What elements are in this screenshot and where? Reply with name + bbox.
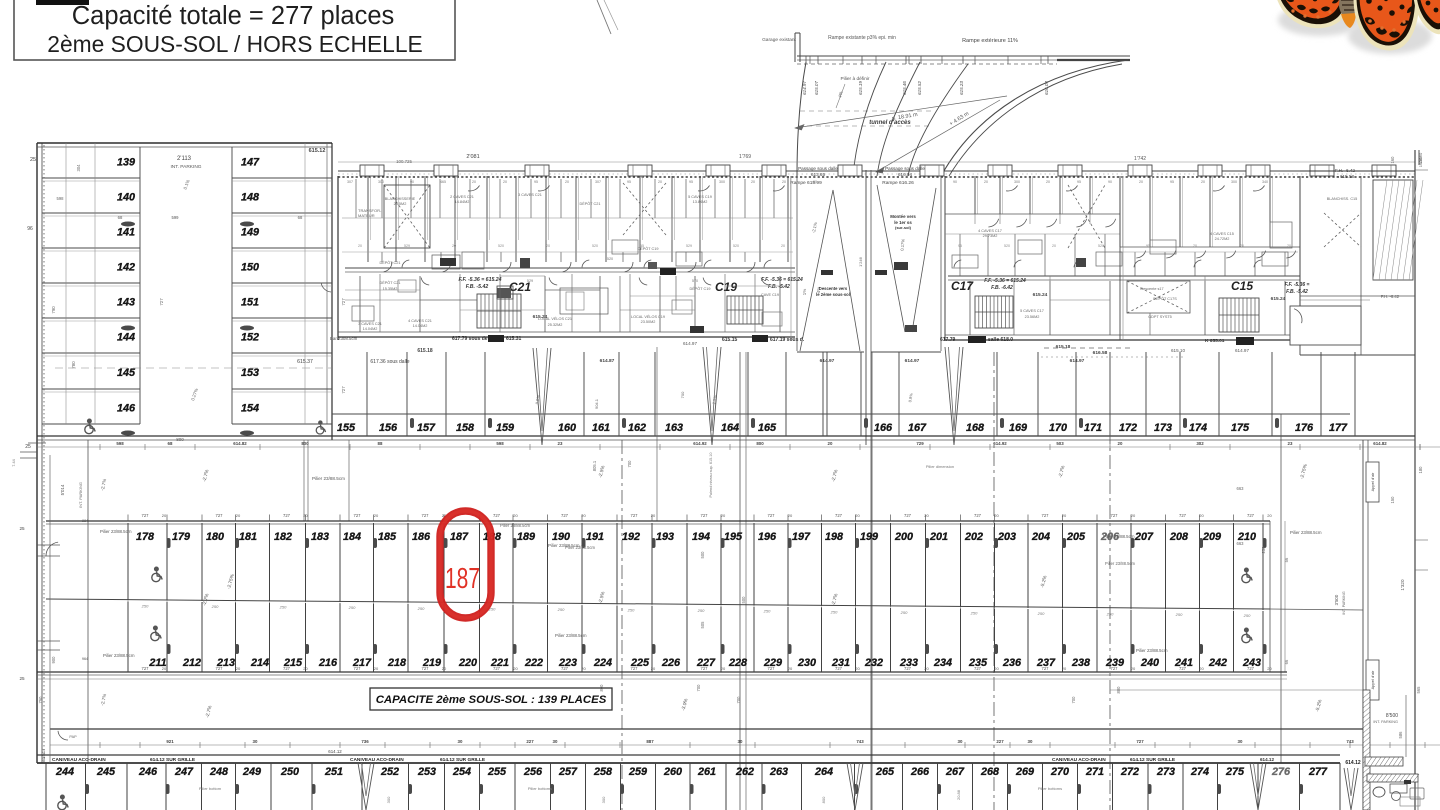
svg-text:CANIVEAU ACO-DRAIN: CANIVEAU ACO-DRAIN (1052, 757, 1106, 763)
svg-text:614.92: 614.92 (993, 441, 1007, 446)
svg-text:244: 244 (55, 766, 74, 778)
svg-text:615.07: 615.07 (814, 81, 819, 95)
svg-text:24.72M2: 24.72M2 (1215, 237, 1230, 241)
svg-text:251: 251 (324, 766, 343, 778)
svg-text:20: 20 (1131, 666, 1136, 671)
svg-text:727: 727 (701, 513, 709, 518)
svg-text:250: 250 (1037, 611, 1045, 616)
svg-text:227: 227 (996, 739, 1004, 744)
svg-text:95: 95 (689, 180, 693, 184)
svg-text:1'769: 1'769 (739, 154, 751, 160)
svg-text:DÉPÔT C19: DÉPÔT C19 (689, 286, 710, 291)
svg-text:153: 153 (241, 367, 259, 379)
svg-text:20: 20 (236, 666, 241, 671)
svg-text:780: 780 (71, 361, 76, 369)
svg-text:1'742: 1'742 (1134, 156, 1146, 162)
svg-text:598: 598 (57, 196, 65, 201)
svg-text:529: 529 (404, 244, 410, 248)
svg-text:727: 727 (1136, 739, 1144, 744)
svg-text:727: 727 (904, 513, 912, 518)
svg-text:614.82: 614.82 (233, 441, 247, 446)
svg-text:95: 95 (1077, 180, 1081, 184)
svg-text:LOCAL VÉLOS C19: LOCAL VÉLOS C19 (631, 314, 665, 319)
svg-text:23.56M2: 23.56M2 (1025, 315, 1040, 319)
svg-text:201: 201 (929, 531, 948, 543)
svg-text:196: 196 (758, 531, 777, 543)
svg-text:800: 800 (821, 796, 826, 803)
svg-text:663: 663 (1237, 486, 1245, 491)
svg-text:139: 139 (117, 157, 135, 169)
svg-text:176: 176 (1295, 422, 1314, 434)
svg-text:F.B. -6.42: F.B. -6.42 (991, 285, 1013, 291)
svg-text:230: 230 (797, 657, 816, 669)
svg-text:529: 529 (527, 279, 533, 283)
svg-text:20: 20 (751, 180, 755, 184)
svg-text:140: 140 (117, 192, 135, 204)
svg-text:20: 20 (1287, 244, 1291, 248)
svg-text:250: 250 (900, 610, 908, 615)
svg-text:273: 273 (1156, 766, 1175, 778)
svg-text:727: 727 (768, 513, 776, 518)
svg-text:265: 265 (875, 766, 895, 778)
svg-text:800: 800 (176, 437, 184, 442)
svg-text:520: 520 (733, 244, 739, 248)
svg-text:250: 250 (141, 603, 149, 608)
svg-text:255: 255 (487, 766, 507, 778)
svg-text:20: 20 (1052, 244, 1056, 248)
svg-text:Pilier bottoms: Pilier bottoms (1038, 786, 1062, 791)
svg-text:253: 253 (417, 766, 436, 778)
svg-text:277: 277 (1308, 766, 1328, 778)
svg-text:269: 269 (1015, 766, 1034, 778)
svg-text:520: 520 (1004, 244, 1010, 248)
svg-text:Appel d'air: Appel d'air (1370, 670, 1375, 689)
svg-text:20: 20 (162, 666, 167, 671)
svg-text:520: 520 (1098, 244, 1104, 248)
svg-text:Montée vers: Montée vers (890, 214, 916, 219)
svg-text:615.24: 615.24 (1271, 296, 1286, 302)
svg-text:4 CAVES C17: 4 CAVES C17 (978, 229, 1002, 233)
svg-text:155: 155 (337, 422, 356, 434)
svg-text:183: 183 (311, 531, 329, 543)
svg-text:615.24: 615.24 (1033, 292, 1048, 298)
svg-text:CAVE C19: CAVE C19 (761, 293, 779, 297)
svg-text:156: 156 (379, 422, 398, 434)
svg-text:Pilier 23/88.5cm: Pilier 23/88.5cm (312, 476, 345, 481)
svg-text:727: 727 (216, 513, 224, 518)
svg-text:20: 20 (984, 180, 988, 184)
svg-text:904.1: 904.1 (594, 398, 599, 409)
svg-text:238: 238 (1071, 657, 1090, 669)
svg-text:887: 887 (646, 739, 654, 744)
svg-text:20: 20 (651, 513, 656, 518)
svg-text:216: 216 (318, 657, 338, 669)
svg-text:salle 618.0: salle 618.0 (988, 337, 1013, 343)
svg-text:175: 175 (1231, 422, 1250, 434)
svg-text:190: 190 (552, 531, 570, 543)
svg-text:266: 266 (910, 766, 930, 778)
svg-text:20: 20 (782, 180, 786, 184)
svg-text:20: 20 (658, 180, 662, 184)
svg-text:614.82: 614.82 (1373, 441, 1387, 446)
svg-text:182: 182 (274, 531, 292, 543)
svg-text:800: 800 (599, 684, 604, 692)
svg-text:465: 465 (440, 180, 446, 184)
svg-text:Pilier 23/88.5cm: Pilier 23/88.5cm (100, 529, 132, 534)
svg-text:220: 220 (458, 657, 477, 669)
svg-text:3 CAVES C21: 3 CAVES C21 (518, 193, 542, 197)
svg-text:900: 900 (51, 656, 56, 664)
svg-text:614.12: 614.12 (328, 749, 342, 754)
svg-text:20: 20 (162, 513, 167, 518)
svg-text:MATEUR: MATEUR (358, 213, 375, 218)
svg-text:727: 727 (835, 666, 843, 671)
svg-text:727: 727 (283, 513, 291, 518)
svg-text:250: 250 (1175, 612, 1183, 617)
svg-text:727: 727 (422, 513, 430, 518)
svg-text:250: 250 (970, 610, 978, 615)
svg-text:180: 180 (1418, 466, 1423, 474)
svg-text:614.97: 614.97 (820, 358, 835, 364)
svg-text:96: 96 (27, 226, 33, 232)
svg-text:615.37: 615.37 (297, 359, 313, 365)
svg-text:617.36 sous dalle: 617.36 sous dalle (370, 359, 409, 365)
svg-text:20: 20 (565, 180, 569, 184)
svg-text:20: 20 (1062, 513, 1067, 518)
svg-text:240: 240 (1140, 657, 1159, 669)
svg-text:700: 700 (736, 696, 741, 704)
svg-text:172: 172 (1119, 422, 1137, 434)
svg-text:615.15: 615.15 (722, 337, 738, 343)
svg-text:250: 250 (557, 607, 565, 612)
svg-text:250: 250 (211, 604, 219, 609)
svg-text:727: 727 (561, 513, 569, 518)
svg-text:727: 727 (341, 298, 346, 306)
svg-text:151: 151 (241, 297, 259, 309)
svg-text:20: 20 (855, 666, 860, 671)
svg-text:505: 505 (700, 621, 705, 629)
svg-text:2ème SOUS-SOL / HORS ECHELLE: 2ème SOUS-SOL / HORS ECHELLE (47, 31, 422, 57)
svg-text:F.F. -5.36 =: F.F. -5.36 = (1285, 282, 1310, 288)
svg-text:(sur-sol): (sur-sol) (895, 225, 912, 230)
svg-text:30: 30 (1028, 739, 1033, 744)
svg-text:267: 267 (945, 766, 965, 778)
svg-text:727: 727 (1042, 666, 1050, 671)
svg-text:20: 20 (788, 513, 793, 518)
svg-text:245: 245 (96, 766, 116, 778)
svg-text:300: 300 (1014, 180, 1020, 184)
svg-text:DÉPÔT C17S: DÉPÔT C17S (1153, 296, 1177, 301)
svg-text:C19: C19 (715, 280, 737, 294)
svg-text:158: 158 (456, 422, 474, 434)
svg-text:202: 202 (964, 531, 983, 543)
svg-text:C15: C15 (1231, 279, 1253, 293)
svg-text:90: 90 (813, 180, 817, 184)
svg-text:Pilier 23/88.5cm: Pilier 23/88.5cm (1290, 530, 1322, 535)
svg-text:271: 271 (1085, 766, 1104, 778)
svg-text:25: 25 (19, 676, 25, 681)
svg-text:614.12 SUR GRILLE: 614.12 SUR GRILLE (150, 757, 196, 763)
svg-text:613.65: 613.65 (811, 172, 825, 177)
svg-text:15.35M2: 15.35M2 (383, 287, 398, 291)
svg-text:20: 20 (472, 180, 476, 184)
svg-text:226: 226 (661, 657, 681, 669)
svg-text:300: 300 (719, 180, 725, 184)
svg-text:20: 20 (513, 666, 518, 671)
svg-text:884: 884 (82, 519, 88, 523)
svg-text:727: 727 (341, 386, 346, 394)
svg-text:186: 186 (412, 531, 431, 543)
svg-text:Pilier 23/88.5cm: Pilier 23/88.5cm (1103, 534, 1135, 539)
svg-text:205: 205 (1066, 531, 1086, 543)
svg-text:727: 727 (1179, 666, 1187, 671)
svg-text:565: 565 (1416, 686, 1421, 694)
svg-text:20: 20 (1139, 180, 1143, 184)
svg-text:614.12 SUR GRILLE: 614.12 SUR GRILLE (1130, 757, 1176, 763)
svg-text:199: 199 (860, 531, 878, 543)
svg-text:CANIVEAU ACO-DRAIN: CANIVEAU ACO-DRAIN (350, 757, 404, 763)
svg-text:615.31: 615.31 (506, 336, 522, 342)
svg-text:4 CAVES C15: 4 CAVES C15 (1210, 232, 1234, 236)
svg-text:30: 30 (253, 739, 258, 744)
svg-text:520: 520 (592, 244, 598, 248)
svg-text:191: 191 (586, 531, 604, 543)
svg-text:68: 68 (298, 215, 303, 220)
svg-text:727: 727 (561, 666, 569, 671)
svg-text:615.18: 615.18 (1056, 344, 1071, 350)
svg-text:261: 261 (697, 766, 716, 778)
svg-text:727: 727 (1111, 513, 1119, 518)
svg-text:5'014: 5'014 (60, 484, 65, 495)
svg-text:617.79: 617.79 (940, 337, 956, 343)
svg-text:615.23: 615.23 (959, 81, 964, 95)
svg-text:20: 20 (924, 513, 929, 518)
svg-text:20: 20 (1062, 666, 1067, 671)
svg-text:727: 727 (631, 666, 639, 671)
svg-text:23: 23 (1288, 441, 1293, 446)
svg-text:20: 20 (546, 244, 550, 248)
svg-text:193: 193 (656, 531, 674, 543)
svg-text:187: 187 (445, 563, 480, 595)
svg-text:964: 964 (82, 657, 88, 661)
svg-text:700: 700 (627, 460, 632, 468)
svg-text:20: 20 (721, 513, 726, 518)
svg-text:307: 307 (595, 180, 601, 184)
svg-text:250: 250 (348, 605, 356, 610)
svg-text:230: 230 (1261, 546, 1266, 554)
svg-text:95: 95 (534, 180, 538, 184)
svg-text:DÉPÔT C21: DÉPÔT C21 (379, 260, 400, 265)
svg-text:Descente vers: Descente vers (819, 286, 848, 291)
svg-text:236: 236 (1002, 657, 1022, 669)
svg-text:615.24: 615.24 (533, 314, 548, 320)
svg-text:616.58: 616.58 (1093, 350, 1108, 356)
svg-text:170: 170 (1049, 422, 1067, 434)
svg-text:228: 228 (728, 657, 747, 669)
svg-text:200: 200 (894, 531, 913, 543)
svg-text:141: 141 (117, 227, 135, 239)
svg-text:178: 178 (136, 531, 154, 543)
svg-text:663: 663 (1237, 541, 1245, 546)
svg-text:727: 727 (1179, 513, 1187, 518)
svg-text:30: 30 (553, 739, 558, 744)
svg-text:276: 276 (1271, 766, 1291, 778)
svg-text:242: 242 (1208, 657, 1227, 669)
svg-text:90: 90 (953, 180, 957, 184)
svg-text:179: 179 (172, 531, 190, 543)
svg-text:GDPT SYST5: GDPT SYST5 (1148, 315, 1172, 319)
svg-text:254: 254 (452, 766, 471, 778)
svg-text:3 CAVES C21: 3 CAVES C21 (358, 322, 382, 326)
svg-text:250: 250 (763, 609, 771, 614)
svg-text:520: 520 (607, 257, 613, 261)
svg-text:165: 165 (758, 422, 777, 434)
svg-text:20: 20 (503, 180, 507, 184)
svg-text:614.12: 614.12 (1345, 760, 1361, 766)
svg-text:20: 20 (1131, 513, 1136, 518)
svg-text:169: 169 (1009, 422, 1027, 434)
svg-text:615.18: 615.18 (417, 348, 433, 354)
svg-text:614.97: 614.97 (802, 81, 807, 95)
svg-text:BLANCHISS. C15: BLANCHISS. C15 (1327, 197, 1358, 201)
svg-text:700: 700 (680, 391, 685, 398)
svg-text:20: 20 (781, 244, 785, 248)
svg-text:Pilier 23/88.5cm: Pilier 23/88.5cm (500, 523, 531, 528)
svg-text:727: 727 (142, 513, 150, 518)
svg-text:250: 250 (627, 608, 635, 613)
svg-text:20: 20 (513, 513, 518, 518)
svg-text:727: 727 (354, 513, 362, 518)
svg-text:le 2ème sous-sol: le 2ème sous-sol (816, 292, 850, 297)
svg-text:232: 232 (864, 657, 883, 669)
svg-text:617.79 sous de: 617.79 sous de (452, 336, 488, 342)
svg-text:68: 68 (168, 441, 173, 446)
svg-text:198: 198 (825, 531, 843, 543)
svg-text:207: 207 (1134, 531, 1154, 543)
svg-text:500: 500 (700, 551, 705, 559)
svg-text:727: 727 (1111, 666, 1119, 671)
svg-text:174: 174 (1189, 422, 1207, 434)
svg-text:Appel d'air: Appel d'air (1370, 472, 1375, 491)
svg-text:614.92: 614.92 (693, 441, 707, 446)
svg-text:20: 20 (236, 513, 241, 518)
svg-text:25: 25 (30, 157, 36, 163)
svg-text:20: 20 (581, 513, 586, 518)
svg-text:Descente s17: Descente s17 (1140, 287, 1163, 291)
svg-text:750: 750 (38, 696, 43, 704)
svg-text:250: 250 (697, 608, 705, 613)
svg-text:88: 88 (378, 441, 383, 446)
svg-text:800: 800 (1116, 686, 1121, 694)
svg-text:Rampe 616.26: Rampe 616.26 (882, 180, 914, 186)
svg-text:150: 150 (241, 262, 259, 274)
svg-text:250: 250 (1243, 613, 1251, 618)
svg-text:1'246: 1'246 (858, 256, 863, 266)
svg-text:615.12: 615.12 (309, 148, 326, 154)
svg-text:56: 56 (1284, 557, 1289, 562)
svg-text:185: 185 (378, 531, 397, 543)
svg-text:727: 727 (1247, 666, 1255, 671)
svg-text:C17: C17 (951, 279, 974, 293)
svg-text:162: 162 (628, 422, 646, 434)
svg-text:195: 195 (724, 531, 743, 543)
svg-text:727: 727 (904, 666, 912, 671)
svg-text:20: 20 (1118, 441, 1123, 446)
svg-text:20: 20 (374, 513, 379, 518)
svg-text:30: 30 (958, 739, 963, 744)
svg-text:247: 247 (174, 766, 194, 778)
svg-text:20: 20 (855, 513, 860, 518)
svg-text:805.1: 805.1 (592, 460, 597, 471)
svg-text:25.32M2: 25.32M2 (548, 323, 563, 327)
svg-text:INT. PARKING: INT. PARKING (78, 482, 83, 508)
svg-text:20: 20 (1046, 180, 1050, 184)
svg-text:30: 30 (738, 739, 743, 744)
svg-text:181: 181 (239, 531, 257, 543)
svg-text:161: 161 (592, 422, 610, 434)
svg-text:149: 149 (241, 227, 259, 239)
svg-text:F.H. -6.42: F.H. -6.42 (1335, 168, 1355, 173)
svg-text:727: 727 (835, 513, 843, 518)
svg-text:260: 260 (663, 766, 682, 778)
svg-text:167: 167 (908, 422, 927, 434)
svg-text:615.46: 615.46 (902, 81, 907, 95)
svg-text:727: 727 (1042, 513, 1050, 518)
svg-text:727: 727 (493, 513, 501, 518)
svg-text:INT. PARKING: INT. PARKING (1342, 591, 1346, 614)
svg-text:187: 187 (450, 531, 469, 543)
svg-text:160/160: 160/160 (1418, 152, 1423, 167)
svg-text:234: 234 (933, 657, 952, 669)
svg-text:Pilier bottom: Pilier bottom (199, 786, 222, 791)
svg-text:Pilier 23/88.5cm: Pilier 23/88.5cm (1136, 648, 1168, 653)
svg-text:598: 598 (116, 441, 124, 446)
svg-text:224: 224 (593, 657, 612, 669)
svg-text:66: 66 (1284, 659, 1289, 664)
svg-text:147: 147 (241, 157, 260, 169)
svg-text:F.B. -5.42: F.B. -5.42 (1286, 289, 1308, 295)
svg-text:25: 25 (19, 526, 25, 531)
svg-text:727: 727 (493, 666, 501, 671)
svg-text:168: 168 (966, 422, 984, 434)
svg-text:614.87: 614.87 (600, 358, 615, 364)
svg-text:160: 160 (558, 422, 576, 434)
svg-text:700: 700 (696, 684, 701, 692)
svg-text:CAPACITE 2ème SOUS-SOL : 139 P: CAPACITE 2ème SOUS-SOL : 139 PLACES (376, 694, 607, 706)
svg-text:727: 727 (159, 298, 164, 306)
svg-text:736: 736 (361, 739, 369, 744)
svg-text:= 615.58: = 615.58 (1336, 174, 1354, 179)
svg-text:302: 302 (1196, 441, 1204, 446)
svg-text:90: 90 (410, 180, 414, 184)
svg-text:340: 340 (1262, 180, 1268, 184)
svg-text:520: 520 (498, 244, 504, 248)
svg-text:Rampe existante p3% epi. min: Rampe existante p3% epi. min (828, 35, 896, 41)
svg-text:598: 598 (496, 441, 504, 446)
svg-text:1%: 1% (802, 289, 807, 296)
svg-text:CANIVEAU ACO-DRAIN: CANIVEAU ACO-DRAIN (52, 757, 106, 763)
svg-text:614.97: 614.97 (683, 341, 697, 346)
svg-text:727: 727 (974, 513, 982, 518)
svg-text:307: 307 (347, 180, 353, 184)
svg-text:614.12: 614.12 (1260, 757, 1274, 762)
svg-text:614.97: 614.97 (1070, 358, 1085, 364)
svg-text:20: 20 (581, 666, 586, 671)
svg-text:20: 20 (358, 244, 362, 248)
svg-text:617.19 sous d.: 617.19 sous d. (770, 337, 805, 343)
svg-text:615.10: 615.10 (1171, 348, 1185, 353)
svg-text:727: 727 (283, 666, 291, 671)
